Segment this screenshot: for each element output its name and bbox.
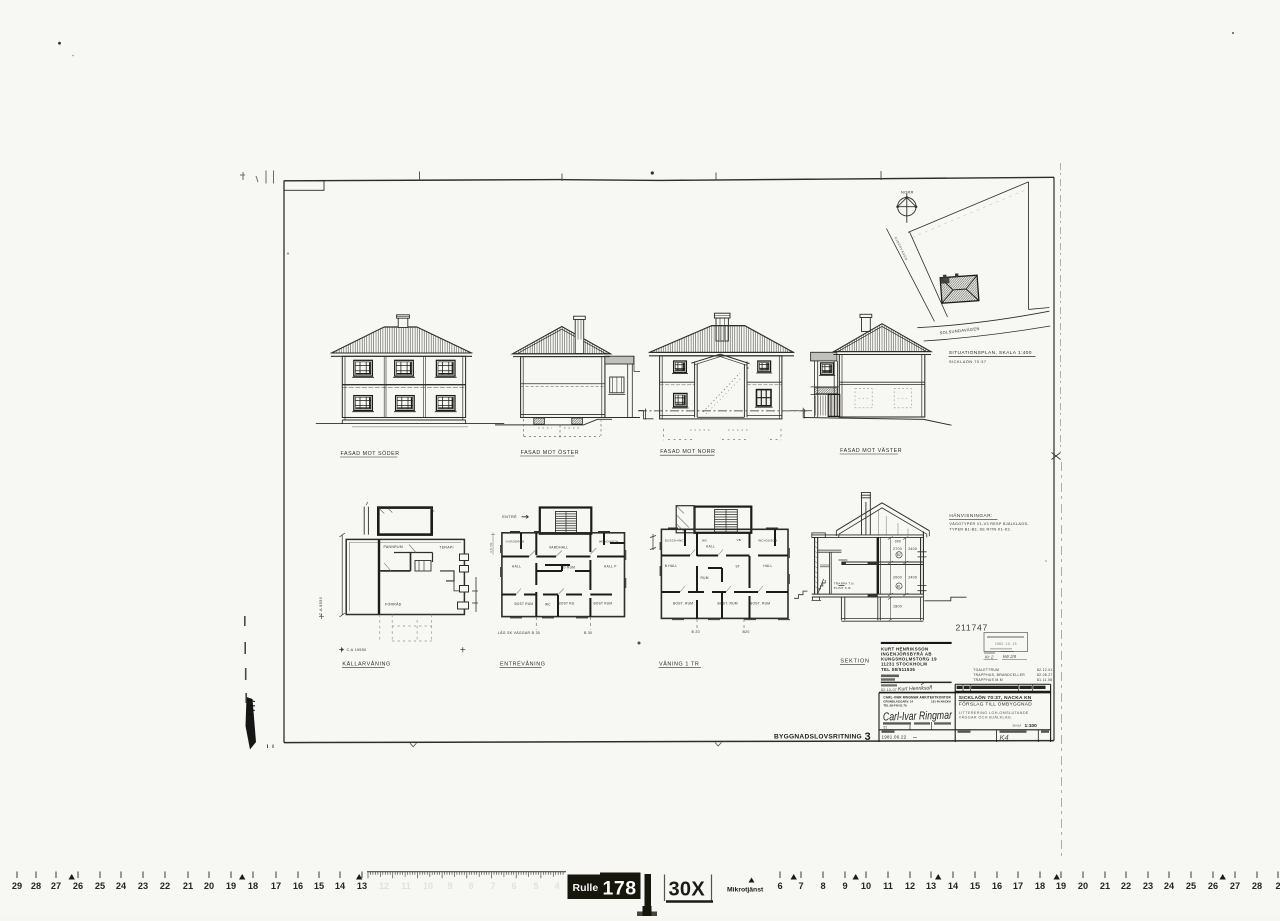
svg-text:B 30: B 30: [584, 631, 592, 635]
svg-text:16: 16: [293, 881, 303, 891]
svg-text:13: 13: [926, 881, 936, 891]
svg-text:TRAPPHUS M.M: TRAPPHUS M.M: [973, 678, 1003, 682]
svg-text:2400: 2400: [908, 576, 917, 580]
svg-text:VÅNING 1 TR: VÅNING 1 TR: [659, 660, 699, 667]
svg-text:12: 12: [379, 881, 389, 891]
svg-text:3: 3: [865, 731, 871, 743]
svg-text:TOALETTRUM: TOALETTRUM: [973, 668, 999, 672]
svg-text:23: 23: [138, 881, 148, 891]
svg-text:18: 18: [248, 881, 258, 891]
svg-text:51: 51: [884, 726, 888, 730]
svg-text:10: 10: [423, 881, 433, 891]
svg-text:25: 25: [1186, 881, 1196, 891]
svg-text:28: 28: [31, 881, 41, 891]
svg-text:K4: K4: [1000, 733, 1009, 742]
svg-text:TERAPI: TERAPI: [439, 545, 453, 549]
svg-text:FÖRRÅD: FÖRRÅD: [385, 601, 402, 606]
svg-text:DUSCH+WC: DUSCH+WC: [665, 539, 685, 543]
svg-text:FASAD MOT ÖSTER: FASAD MOT ÖSTER: [521, 449, 579, 456]
svg-text:ENTRÉ: ENTRÉ: [502, 514, 517, 519]
svg-text:SICKLAÖN 70:37, NACKA KN: SICKLAÖN 70:37, NACKA KN: [959, 694, 1032, 701]
svg-text:WC+DUSCH: WC+DUSCH: [599, 539, 618, 543]
svg-text:17: 17: [271, 881, 281, 891]
svg-text:900: 900: [895, 539, 901, 543]
svg-text:11: 11: [883, 881, 893, 891]
svg-text:TRAPPHUS, BRANDCELLER: TRAPPHUS, BRANDCELLER: [973, 673, 1025, 677]
svg-text:6: 6: [511, 881, 516, 891]
svg-text:BOST RUM: BOST RUM: [515, 602, 534, 606]
svg-text:14: 14: [948, 881, 959, 891]
svg-text:Mikrotjänst: Mikrotjänst: [727, 887, 764, 894]
svg-text:15: 15: [314, 881, 324, 891]
svg-text:VÄGGTYPER V1-V3 RESP BJÄLKLAGS: VÄGGTYPER V1-V3 RESP BJÄLKLAGS-: [949, 522, 1029, 526]
svg-text:HALL: HALL: [763, 564, 772, 568]
svg-text:WC: WC: [545, 603, 551, 607]
svg-text:VARDHALL: VARDHALL: [549, 546, 569, 550]
svg-text:15: 15: [970, 881, 980, 891]
svg-text:28: 28: [1252, 881, 1262, 891]
svg-text:211747: 211747: [956, 623, 989, 633]
svg-text:1800: 1800: [893, 605, 902, 609]
svg-text:16: 16: [992, 881, 1002, 891]
svg-text:LITTERERING LGH-OMSLUTANDE: LITTERERING LGH-OMSLUTANDE: [959, 711, 1029, 715]
svg-text:1982 -10- 19: 1982 -10- 19: [995, 642, 1017, 646]
svg-text:HÄNVISNINGAR:: HÄNVISNINGAR:: [949, 512, 993, 518]
svg-text:1981.06.22: 1981.06.22: [882, 735, 907, 740]
svg-text:27: 27: [1230, 881, 1240, 891]
svg-text:14: 14: [335, 881, 346, 891]
svg-text:HALL P: HALL P: [604, 565, 617, 569]
svg-text:PLINT K.B.: PLINT K.B.: [834, 586, 852, 590]
svg-text:178: 178: [603, 878, 637, 900]
svg-text:KÄLLARVÅNING: KÄLLARVÅNING: [342, 660, 390, 667]
svg-text:ST: ST: [736, 565, 741, 569]
svg-text:9: 9: [447, 881, 452, 891]
svg-text:BOST. RUM: BOST. RUM: [750, 601, 770, 605]
svg-text:13: 13: [357, 881, 367, 891]
svg-text:Kr 2: Kr 2: [985, 655, 994, 660]
svg-text:1:100: 1:100: [1025, 723, 1038, 729]
svg-text:kW 2/8: kW 2/8: [1003, 654, 1017, 659]
svg-text:26: 26: [1208, 881, 1218, 891]
svg-text:20: 20: [1078, 881, 1088, 891]
svg-text:BOST RU: BOST RU: [559, 602, 575, 606]
svg-text:17: 17: [1013, 881, 1023, 891]
svg-text:4: 4: [554, 881, 559, 891]
svg-text:TRAPPA T.N.: TRAPPA T.N.: [834, 582, 855, 586]
svg-text:10: 10: [861, 881, 871, 891]
svg-text:2: 2: [1275, 881, 1280, 891]
svg-text:20: 20: [204, 881, 214, 891]
svg-text:2000: 2000: [893, 576, 902, 580]
svg-text:81.11.08: 81.11.08: [1037, 678, 1052, 682]
svg-text:VÄGGAR OCH BJÄLKLAG.: VÄGGAR OCH BJÄLKLAG.: [959, 716, 1013, 720]
svg-text:VB: VB: [737, 538, 741, 542]
svg-text:Rulle: Rulle: [573, 882, 599, 894]
svg-text:21: 21: [183, 881, 193, 891]
svg-text:PANNRUM: PANNRUM: [384, 545, 404, 549]
svg-text:B2: B2: [897, 553, 901, 557]
svg-text:B20: B20: [743, 630, 750, 634]
svg-text:SITUATIONSPLAN, SKALA 1:400: SITUATIONSPLAN, SKALA 1:400: [949, 350, 1032, 356]
svg-text:NORR: NORR: [901, 191, 914, 195]
svg-text:BOST. RUM: BOST. RUM: [673, 601, 693, 605]
svg-text:131 40 NACKA: 131 40 NACKA: [931, 700, 952, 704]
svg-text:FÖRSLAG TILL OMBYGGNAD: FÖRSLAG TILL OMBYGGNAD: [959, 701, 1032, 708]
svg-text:8: 8: [468, 881, 473, 891]
svg-text:27: 27: [51, 881, 61, 891]
svg-text:19: 19: [1056, 881, 1066, 891]
svg-text:19: 19: [226, 881, 236, 891]
svg-text:23: 23: [1143, 881, 1153, 891]
svg-text:C:A 19550: C:A 19550: [347, 648, 367, 652]
svg-text:24: 24: [116, 881, 127, 891]
svg-text:25: 25: [95, 881, 105, 891]
svg-text:30X: 30X: [669, 879, 706, 901]
svg-text:C:A 8550: C:A 8550: [319, 597, 323, 616]
svg-text:12: 12: [905, 881, 915, 891]
svg-text:21: 21: [1100, 881, 1110, 891]
svg-text:8: 8: [820, 881, 825, 891]
svg-text:BYGGNADSLOVSRITNING: BYGGNADSLOVSRITNING: [774, 734, 862, 741]
svg-text:11: 11: [401, 881, 411, 891]
svg-text:BOST. RUM: BOST. RUM: [718, 601, 738, 605]
svg-text:Ö RUM: Ö RUM: [563, 565, 575, 569]
svg-text:Kurt Henrikson: Kurt Henrikson: [898, 685, 933, 692]
svg-text:FASAD MOT VÄSTER: FASAD MOT VÄSTER: [840, 447, 902, 454]
svg-text:18: 18: [1035, 881, 1045, 891]
svg-text:9: 9: [842, 881, 847, 891]
svg-text:WC+DUSCH: WC+DUSCH: [758, 539, 777, 543]
svg-text:SKALA: SKALA: [1013, 723, 1022, 727]
svg-text:TEL 08/511535: TEL 08/511535: [881, 667, 915, 672]
svg-text:B1: B1: [897, 584, 901, 588]
svg-text:6: 6: [777, 881, 782, 891]
svg-text:TYPER B1-B3, SE RITN K1-K3.: TYPER B1-B3, SE RITN K1-K3.: [949, 528, 1011, 532]
svg-text:HALL: HALL: [706, 545, 715, 549]
svg-text:82-10-07: 82-10-07: [881, 688, 897, 692]
svg-text:24: 24: [1164, 881, 1175, 891]
svg-text:7: 7: [490, 881, 495, 891]
svg-text:LÅG SK VÄGGAR B 30: LÅG SK VÄGGAR B 30: [498, 630, 540, 635]
svg-text:5: 5: [533, 881, 538, 891]
svg-text:HALL: HALL: [512, 565, 521, 569]
svg-text:82.12.01: 82.12.01: [1037, 668, 1053, 672]
svg-text:ENTRÉVÅNING: ENTRÉVÅNING: [500, 660, 546, 667]
svg-text:B HALL: B HALL: [665, 564, 678, 568]
svg-text:22: 22: [1121, 881, 1131, 891]
svg-text:FASAD MOT NORR: FASAD MOT NORR: [660, 449, 715, 455]
svg-text:SICKLAÖN 70:37: SICKLAÖN 70:37: [949, 359, 987, 364]
svg-text:22: 22: [160, 881, 170, 891]
svg-text:7: 7: [798, 881, 803, 891]
svg-text:4,5 TR: 4,5 TR: [489, 542, 493, 553]
svg-text:26: 26: [73, 881, 83, 891]
svg-text:FASAD MOT SÖDER: FASAD MOT SÖDER: [341, 450, 400, 457]
svg-text:GARDEROB: GARDEROB: [506, 540, 525, 544]
svg-text:TEL 08-740 51 70: TEL 08-740 51 70: [883, 704, 907, 708]
svg-text:29: 29: [12, 881, 22, 891]
svg-text:B 20: B 20: [692, 630, 700, 634]
svg-text:2400: 2400: [908, 547, 917, 551]
svg-text:Carl-Ivar Ringmar: Carl-Ivar Ringmar: [883, 710, 953, 724]
svg-text:BOST RUM: BOST RUM: [594, 602, 613, 606]
svg-text:82.08.27: 82.08.27: [1037, 673, 1053, 677]
svg-text:WC: WC: [702, 539, 708, 543]
svg-text:SEKTION: SEKTION: [840, 658, 869, 664]
svg-text:RUM: RUM: [701, 576, 709, 580]
svg-text:2700: 2700: [893, 547, 902, 551]
